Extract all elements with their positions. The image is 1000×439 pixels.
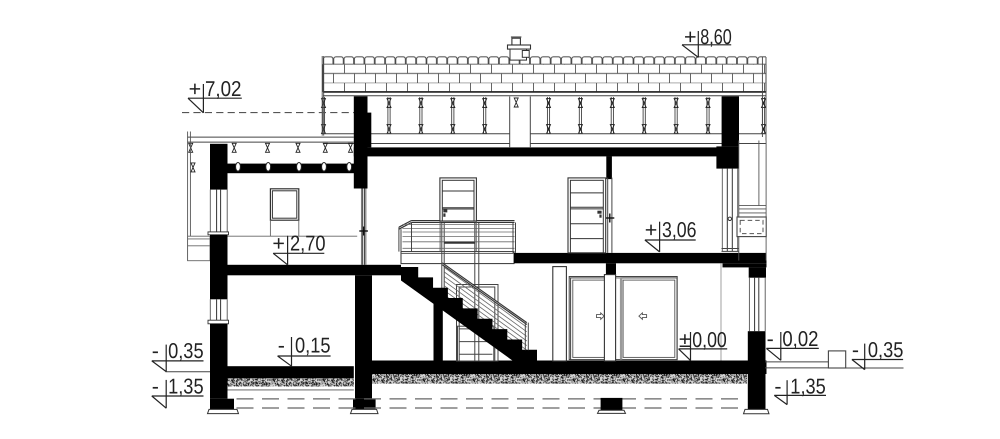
svg-text:0,15: 0,15 <box>295 334 331 358</box>
svg-text:-: - <box>767 327 774 351</box>
svg-text:2,70: 2,70 <box>290 232 326 256</box>
svg-text:0,35: 0,35 <box>168 339 204 363</box>
svg-text:+: + <box>272 232 285 256</box>
svg-text:-: - <box>152 339 159 363</box>
svg-text:-: - <box>852 338 859 362</box>
svg-text:1,35: 1,35 <box>168 374 204 398</box>
svg-text:0,35: 0,35 <box>868 338 904 362</box>
svg-text:+: + <box>645 218 658 242</box>
svg-text:-: - <box>278 334 285 358</box>
svg-text:3,06: 3,06 <box>662 218 697 242</box>
svg-text:-: - <box>152 374 159 398</box>
svg-text:0,02: 0,02 <box>782 327 818 351</box>
